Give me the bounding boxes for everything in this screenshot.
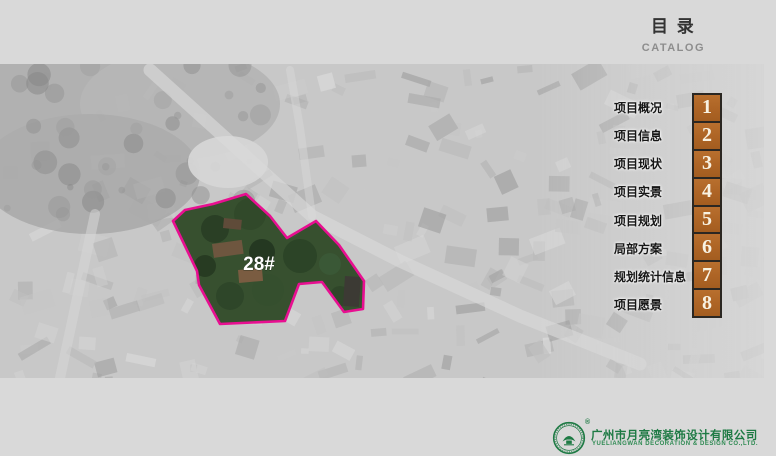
menu-item-3[interactable]: 项目现状 (614, 156, 662, 172)
menu-number-1[interactable]: 1 (694, 95, 720, 123)
menu-number-8[interactable]: 8 (694, 290, 720, 316)
company-logo-icon (552, 421, 586, 455)
catalog-number-column: 1 2 3 4 5 6 7 8 (692, 93, 722, 318)
menu-item-7[interactable]: 规划统计信息 (614, 269, 686, 285)
company-name-en: YUELIANGWAN DECORATION & DESIGN CO.,LTD. (592, 441, 758, 447)
header: 目 录 CATALOG (642, 16, 705, 54)
menu-number-6[interactable]: 6 (694, 234, 720, 262)
page-title: 目 录 (642, 16, 705, 38)
menu-item-4[interactable]: 项目实景 (614, 184, 662, 200)
menu-number-4[interactable]: 4 (694, 179, 720, 207)
catalog-slide: 目 录 CATALOG (0, 0, 776, 456)
menu-number-5[interactable]: 5 (694, 207, 720, 235)
menu-number-3[interactable]: 3 (694, 151, 720, 179)
menu-item-8[interactable]: 项目愿景 (614, 297, 662, 313)
page-subtitle: CATALOG (642, 42, 705, 54)
menu-number-2[interactable]: 2 (694, 123, 720, 151)
menu-item-1[interactable]: 项目概况 (614, 100, 662, 116)
menu-item-5[interactable]: 项目规划 (614, 213, 662, 229)
menu-item-6[interactable]: 局部方案 (614, 241, 662, 257)
menu-item-2[interactable]: 项目信息 (614, 128, 662, 144)
registered-trademark-mark: ® (585, 419, 590, 426)
menu-number-7[interactable]: 7 (694, 262, 720, 290)
site-label: 28# (243, 254, 275, 275)
